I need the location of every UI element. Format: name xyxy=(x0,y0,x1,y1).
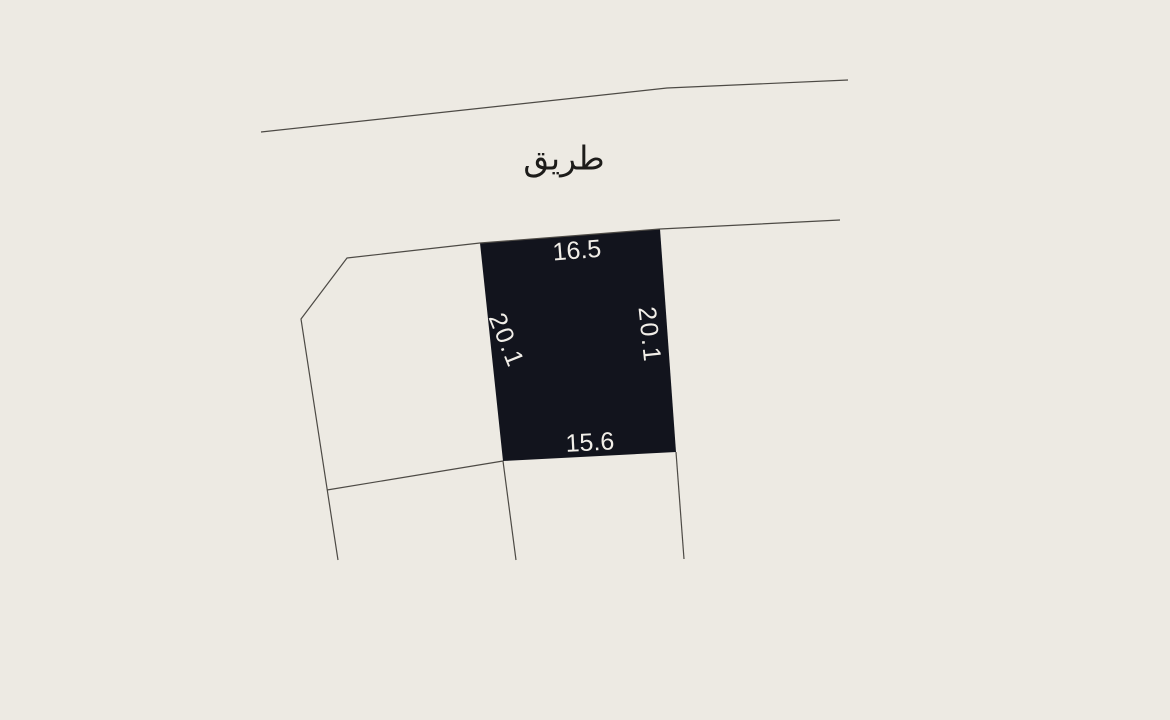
dimension-bottom-label: 15.6 xyxy=(565,427,615,458)
parcel-bottom-right-boundary-line xyxy=(676,452,684,559)
road-name-label: طريق xyxy=(523,140,604,179)
parcel-sketch: طريق 16.5 20.1 20.1 15.6 xyxy=(0,0,1170,720)
dimension-top-label: 16.5 xyxy=(552,235,603,267)
parcel-sketch-canvas: طريق 16.5 20.1 20.1 15.6 xyxy=(0,0,1170,720)
parcel-bottom-left-boundary-line xyxy=(503,461,516,560)
dimension-right-label: 20.1 xyxy=(632,305,666,364)
road-upper-edge-line xyxy=(261,80,848,132)
left-neighbor-bottom-boundary-line xyxy=(327,461,503,490)
